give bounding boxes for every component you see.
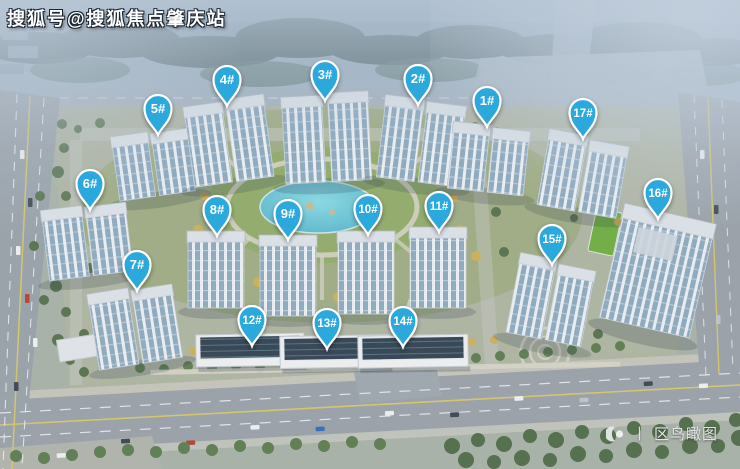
- site-illustration: [0, 0, 740, 469]
- aerial-rendering: 1#2#3#4#5#6#7#8#9#10#11#12#13#14#15#16#1…: [0, 0, 740, 469]
- haze-overlays: [0, 0, 740, 469]
- logo-crescent-icon: [606, 426, 626, 442]
- watermark-text: 搜狐号@搜狐焦点肇庆站: [7, 5, 227, 31]
- caption-text: 区鸟瞰图: [654, 423, 718, 444]
- caption-separator: 丨: [632, 423, 648, 444]
- view-caption: 丨 区鸟瞰图: [606, 423, 718, 444]
